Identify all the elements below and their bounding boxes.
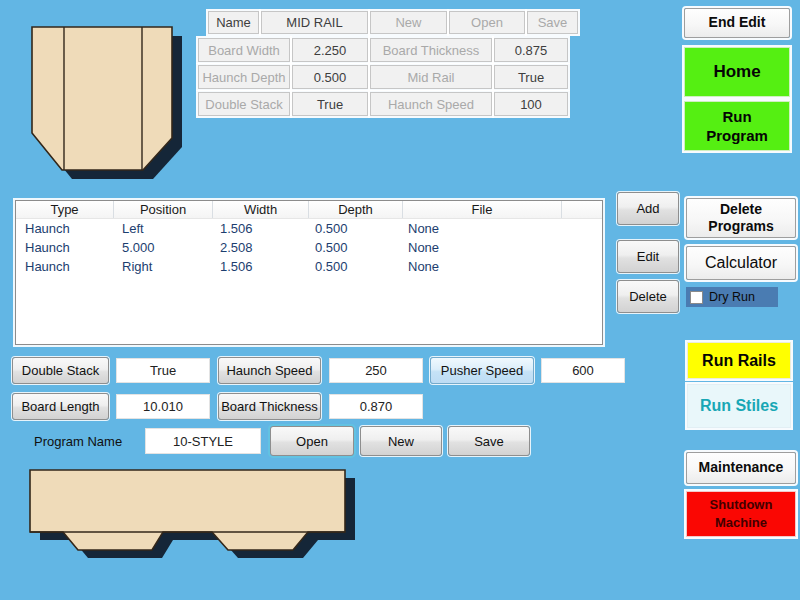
mid-rail-label: Mid Rail <box>370 65 492 89</box>
cell-file: None <box>399 240 557 255</box>
table-row[interactable]: Haunch 5.000 2.508 0.500 None <box>16 238 602 257</box>
cell-type: Haunch <box>16 240 113 255</box>
delete-programs-button[interactable]: Delete Programs <box>686 198 796 238</box>
name-label-cell: Name <box>208 11 259 34</box>
calculator-button[interactable]: Calculator <box>686 246 796 280</box>
haunch-speed-button[interactable]: Haunch Speed <box>218 357 321 384</box>
column-header-depth[interactable]: Depth <box>309 201 403 218</box>
pusher-speed-input[interactable] <box>541 358 625 383</box>
cuts-table: Type Position Width Depth File Haunch Le… <box>15 200 603 345</box>
haunch-speed-label: Haunch Speed <box>370 92 492 116</box>
dry-run-label: Dry Run <box>709 290 755 304</box>
board-thickness-input[interactable] <box>329 394 423 419</box>
haunch-speed-input[interactable] <box>329 358 423 383</box>
delete-button[interactable]: Delete <box>617 280 679 313</box>
cell-depth: 0.500 <box>306 240 399 255</box>
cell-file: None <box>399 259 557 274</box>
rail-profile-bottom-diagram <box>28 466 373 566</box>
new-button[interactable]: New <box>370 11 447 34</box>
pusher-speed-button[interactable]: Pusher Speed <box>430 357 534 384</box>
program-save-button[interactable]: Save <box>448 426 530 456</box>
cell-type: Haunch <box>16 259 113 274</box>
cell-file: None <box>399 221 557 236</box>
column-header-file[interactable]: File <box>403 201 562 218</box>
haunch-speed-value: 100 <box>494 92 568 116</box>
maintenance-button[interactable]: Maintenance <box>686 452 796 484</box>
program-new-button[interactable]: New <box>360 426 442 456</box>
board-width-value: 2.250 <box>292 38 368 62</box>
board-width-label: Board Width <box>198 38 290 62</box>
board-profile-top-diagram <box>20 18 200 188</box>
haunch-depth-value: 0.500 <box>292 65 368 89</box>
column-header-width[interactable]: Width <box>213 201 309 218</box>
machine-control-screen: Name MID RAIL New Open Save Board Width … <box>0 0 800 600</box>
cell-position: 5.000 <box>113 240 211 255</box>
add-button[interactable]: Add <box>617 192 679 225</box>
cell-width: 1.506 <box>211 221 306 236</box>
cell-type: Haunch <box>16 221 113 236</box>
board-thickness-value: 0.875 <box>494 38 568 62</box>
end-edit-button[interactable]: End Edit <box>684 8 790 38</box>
program-name-label: Program Name <box>34 428 122 455</box>
board-thickness-button[interactable]: Board Thickness <box>218 393 321 420</box>
cell-width: 1.506 <box>211 259 306 274</box>
run-rails-button[interactable]: Run Rails <box>687 342 791 379</box>
edit-button[interactable]: Edit <box>617 240 679 273</box>
run-program-button[interactable]: Run Program <box>684 101 790 151</box>
board-length-input[interactable] <box>116 394 210 419</box>
table-row[interactable]: Haunch Left 1.506 0.500 None <box>16 219 602 238</box>
board-length-button[interactable]: Board Length <box>12 393 109 420</box>
program-open-button[interactable]: Open <box>270 426 354 456</box>
double-stack-input[interactable] <box>116 358 210 383</box>
double-stack-value: True <box>292 92 368 116</box>
dry-run-checkbox[interactable] <box>690 291 703 304</box>
name-value-cell[interactable]: MID RAIL <box>261 11 368 34</box>
cell-depth: 0.500 <box>306 221 399 236</box>
haunch-depth-label: Haunch Depth <box>198 65 290 89</box>
run-stiles-button[interactable]: Run Stiles <box>687 384 791 428</box>
column-header-position[interactable]: Position <box>114 201 213 218</box>
dry-run-bar: Dry Run <box>686 287 778 307</box>
double-stack-button[interactable]: Double Stack <box>12 357 109 384</box>
cell-width: 2.508 <box>211 240 306 255</box>
cell-position: Right <box>113 259 211 274</box>
mid-rail-value: True <box>494 65 568 89</box>
column-header-blank <box>562 201 602 218</box>
cuts-table-header: Type Position Width Depth File <box>16 201 602 219</box>
cell-position: Left <box>113 221 211 236</box>
save-button[interactable]: Save <box>527 11 578 34</box>
cell-depth: 0.500 <box>306 259 399 274</box>
open-button[interactable]: Open <box>449 11 525 34</box>
home-button[interactable]: Home <box>684 47 790 97</box>
shutdown-machine-button[interactable]: Shutdown Machine <box>686 491 796 537</box>
double-stack-label: Double Stack <box>198 92 290 116</box>
board-profile-shape <box>32 27 172 170</box>
program-name-input[interactable] <box>145 428 261 454</box>
table-row[interactable]: Haunch Right 1.506 0.500 None <box>16 257 602 276</box>
board-thickness-label: Board Thickness <box>370 38 492 62</box>
column-header-type[interactable]: Type <box>16 201 114 218</box>
